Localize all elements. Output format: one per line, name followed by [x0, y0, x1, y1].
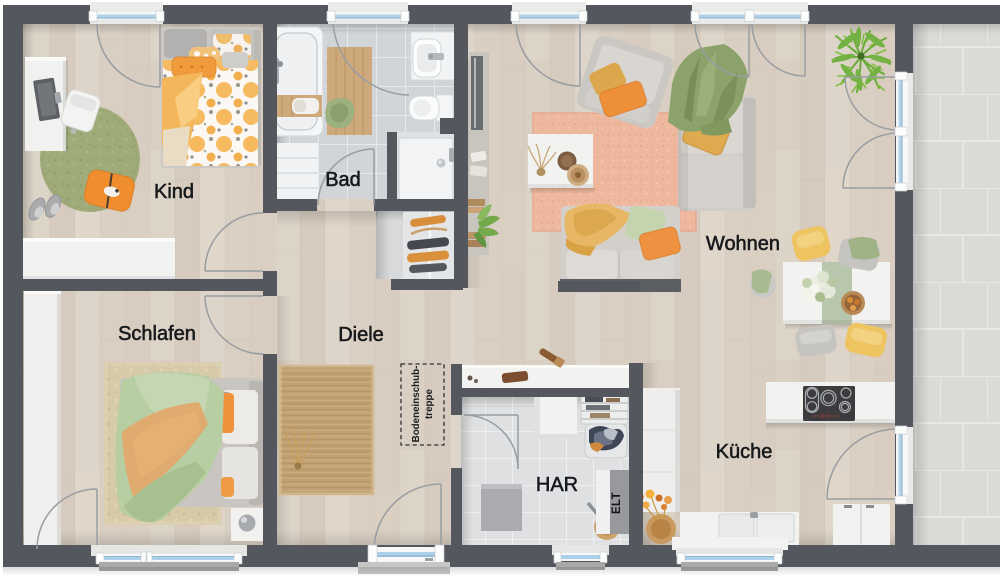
svg-text:Wohnen: Wohnen: [706, 233, 780, 255]
svg-text:Schlafen: Schlafen: [118, 323, 196, 345]
svg-text:Kind: Kind: [154, 181, 194, 203]
svg-text:Küche: Küche: [716, 441, 773, 463]
svg-text:Diele: Diele: [338, 324, 384, 346]
svg-text:treppe: treppe: [424, 388, 435, 418]
svg-text:ELT: ELT: [611, 492, 623, 514]
svg-text:Bad: Bad: [325, 169, 361, 191]
svg-text:Bodeneinschub-: Bodeneinschub-: [411, 366, 422, 443]
svg-text:HAR: HAR: [536, 474, 578, 496]
